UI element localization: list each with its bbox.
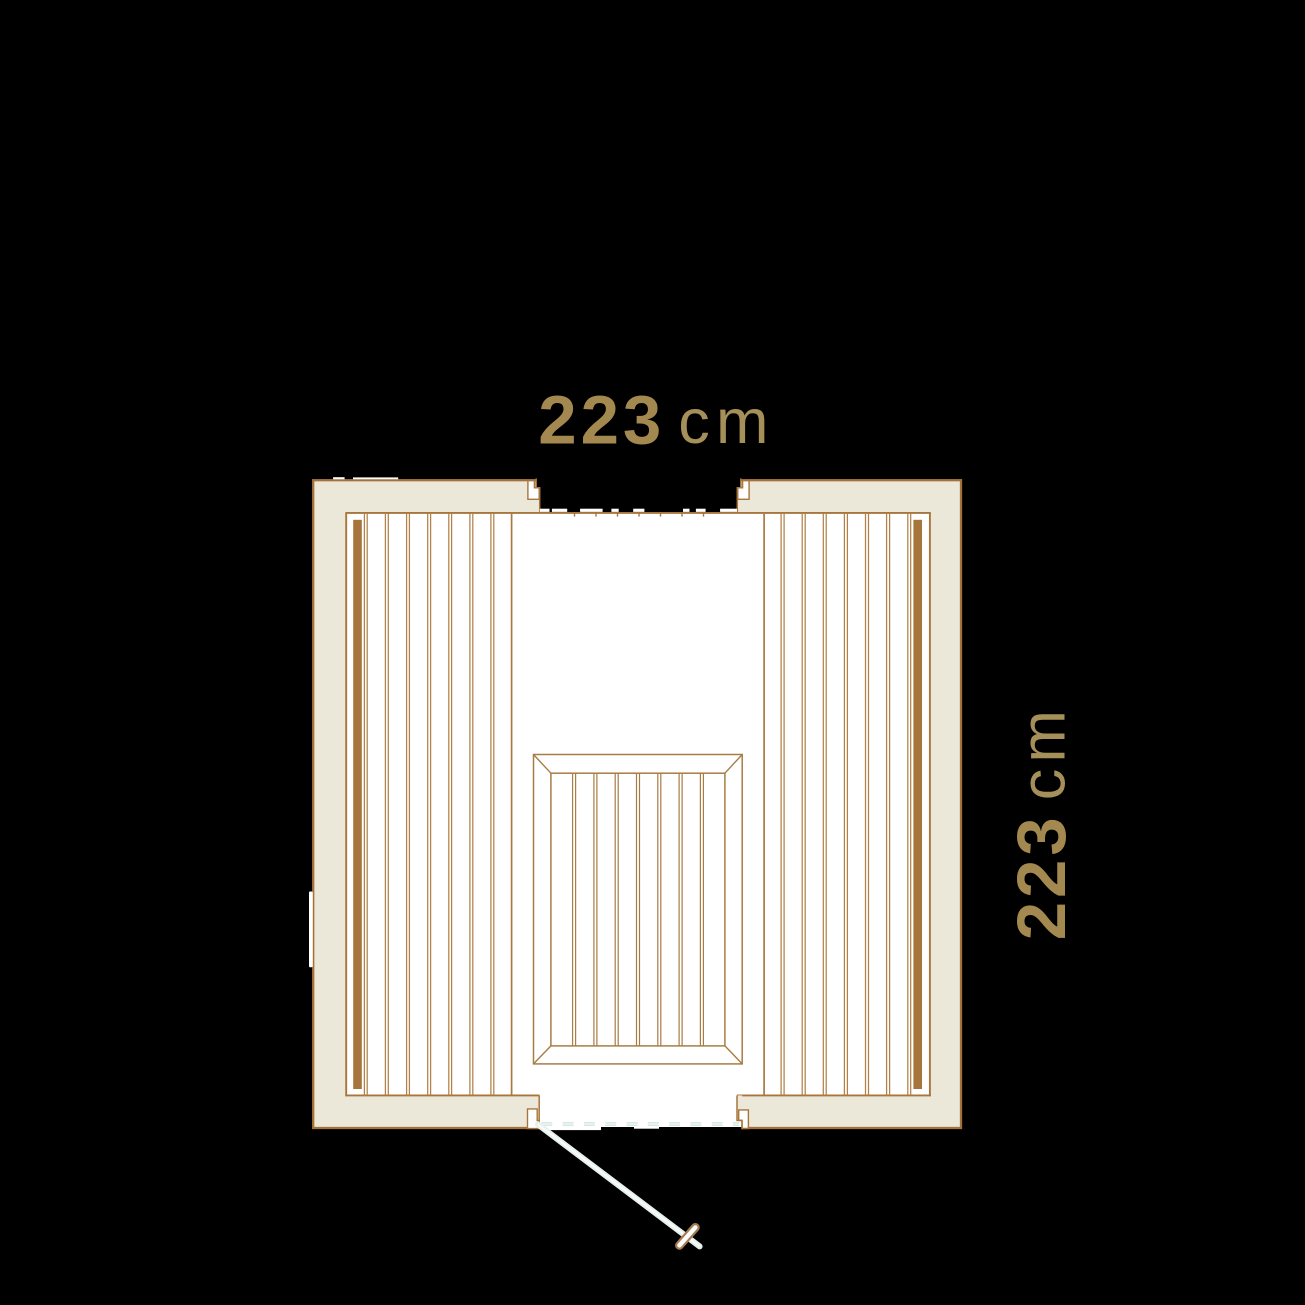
- svg-text:cm: cm: [1008, 704, 1078, 800]
- svg-text:223: 223: [1003, 813, 1080, 940]
- svg-text:223: 223: [538, 382, 665, 459]
- svg-text:cm: cm: [678, 387, 774, 457]
